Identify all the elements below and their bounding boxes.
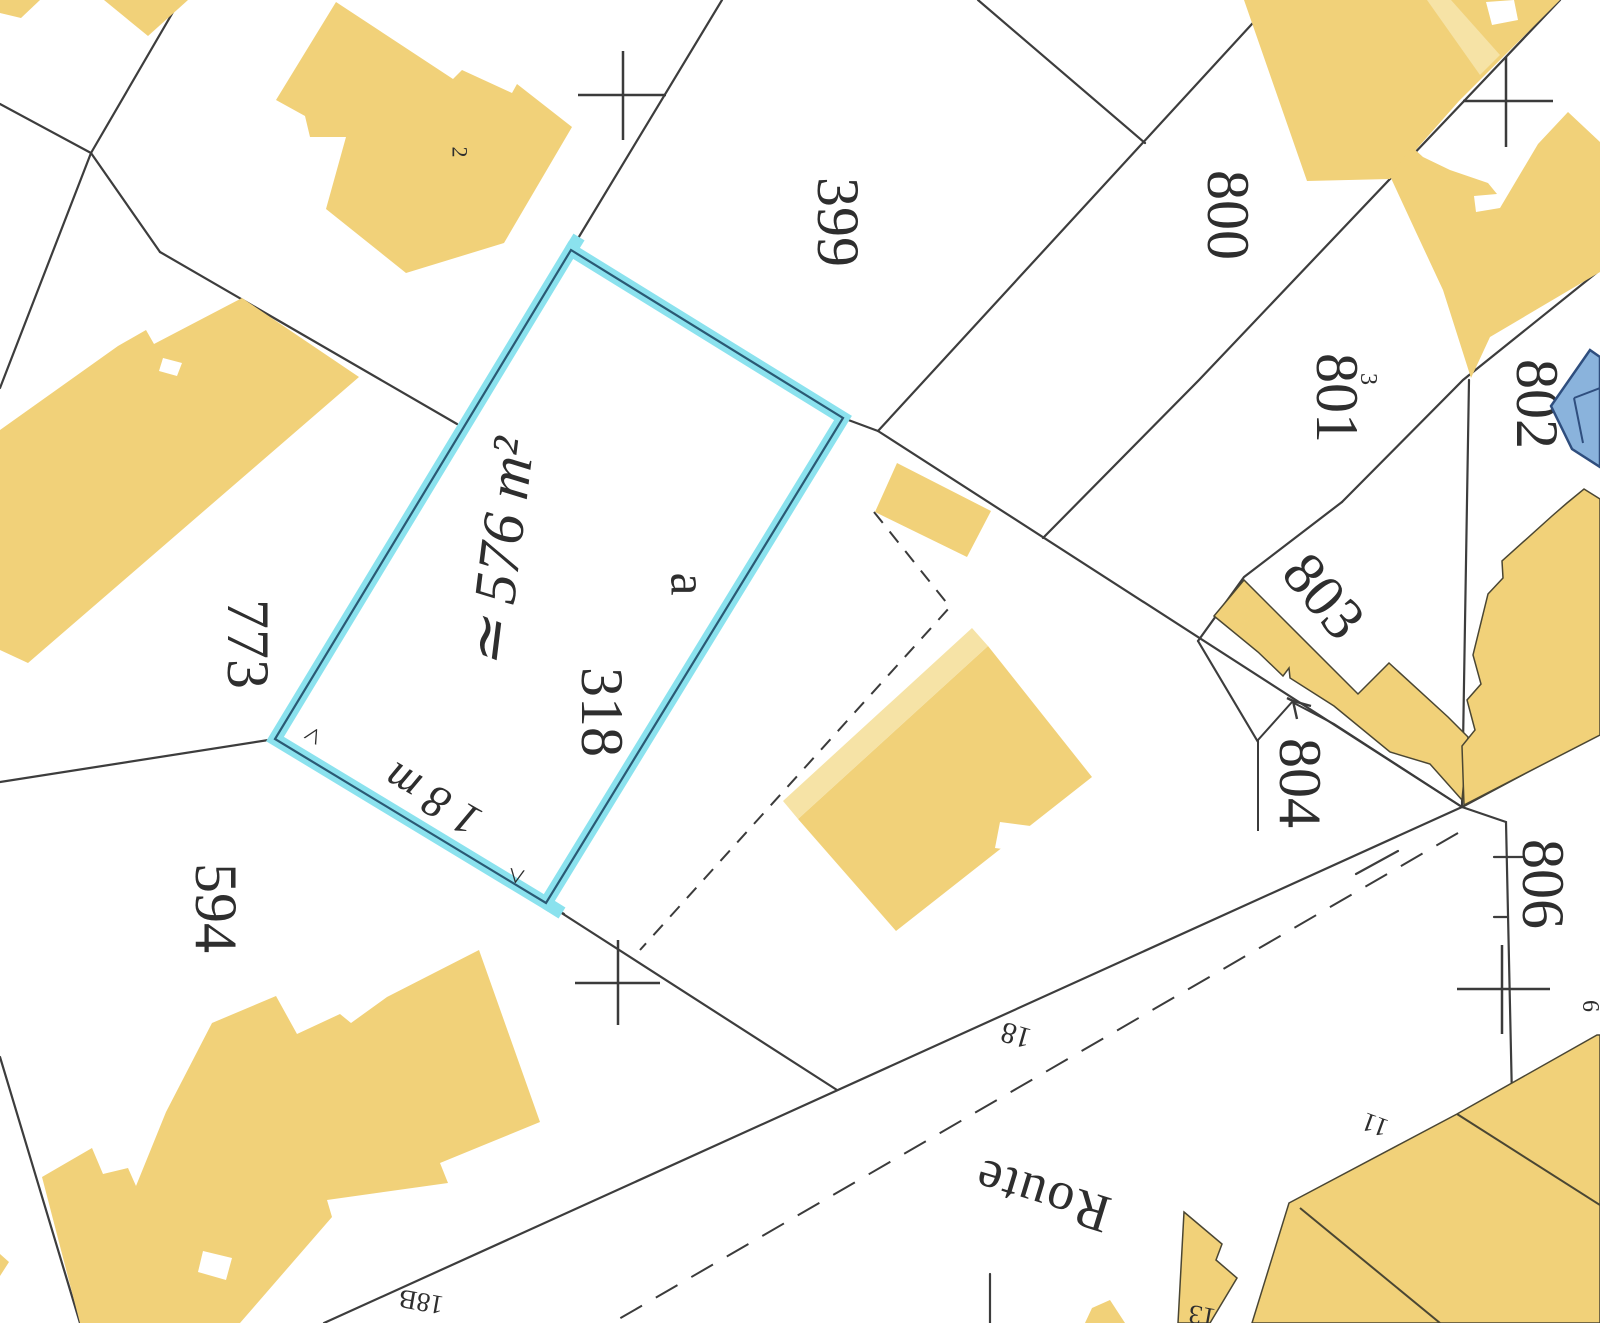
svg-text:806: 806 bbox=[1510, 839, 1576, 929]
svg-text:804: 804 bbox=[1267, 738, 1333, 828]
svg-text:3: 3 bbox=[1355, 373, 1381, 385]
svg-text:800: 800 bbox=[1195, 170, 1261, 260]
svg-text:399: 399 bbox=[805, 177, 871, 267]
svg-text:801: 801 bbox=[1304, 353, 1370, 443]
svg-text:a: a bbox=[660, 572, 717, 595]
svg-text:773: 773 bbox=[215, 599, 281, 689]
svg-text:2: 2 bbox=[448, 147, 473, 158]
svg-text:6: 6 bbox=[1577, 1000, 1600, 1012]
svg-text:594: 594 bbox=[183, 863, 249, 953]
svg-text:318: 318 bbox=[569, 667, 635, 757]
